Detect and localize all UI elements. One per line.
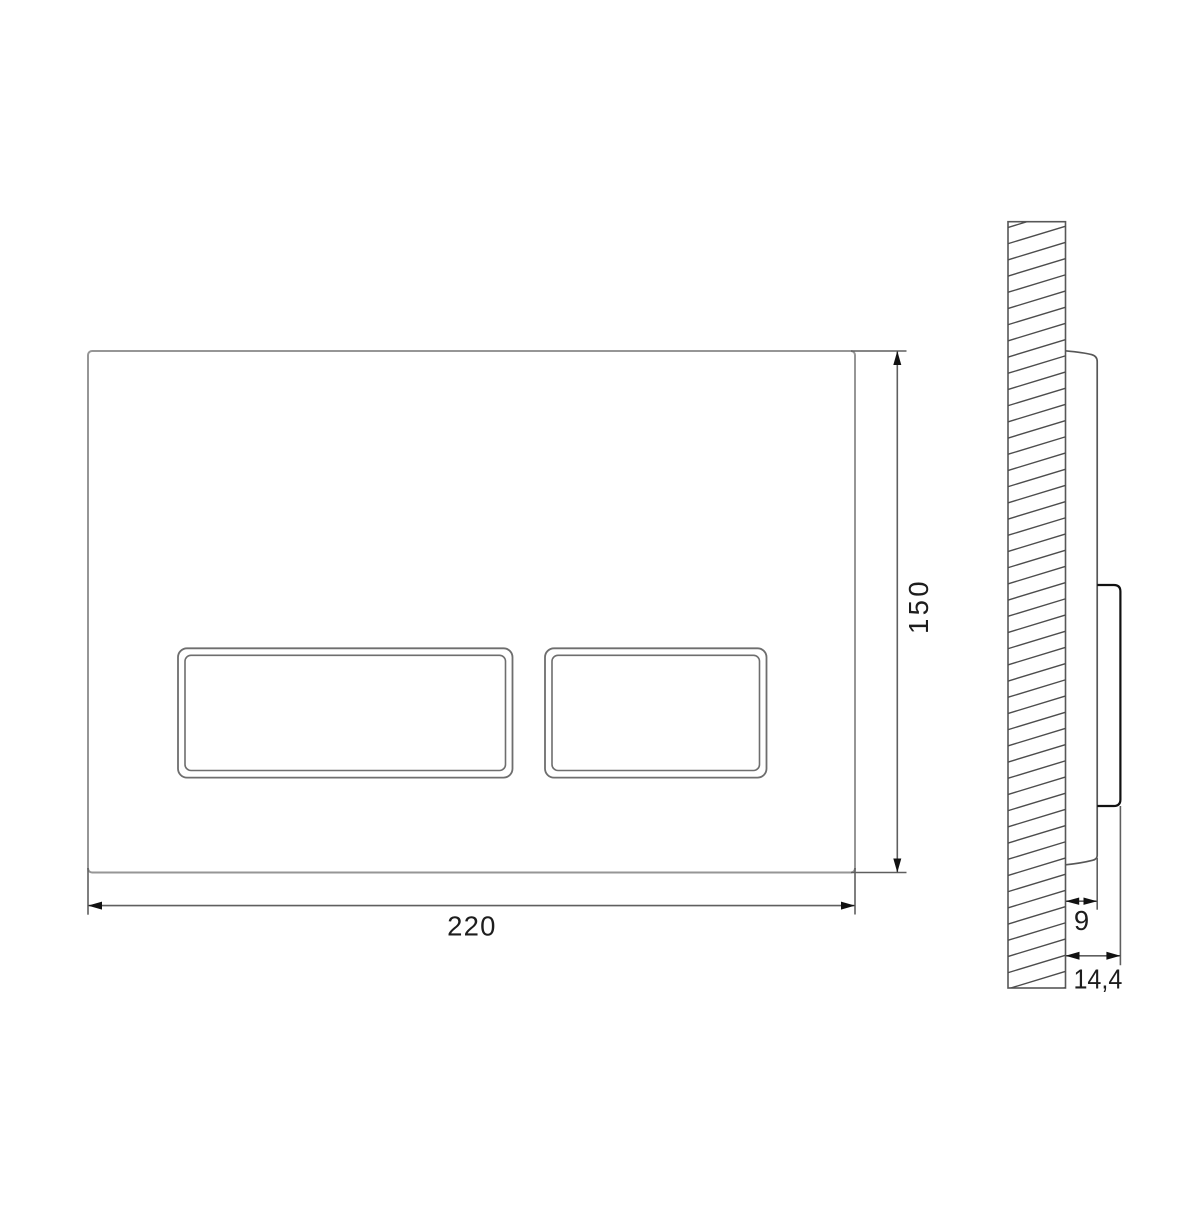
svg-text:9: 9: [1074, 905, 1089, 936]
svg-text:14,4: 14,4: [1073, 964, 1122, 995]
svg-text:220: 220: [447, 911, 495, 942]
svg-text:150: 150: [903, 581, 934, 634]
